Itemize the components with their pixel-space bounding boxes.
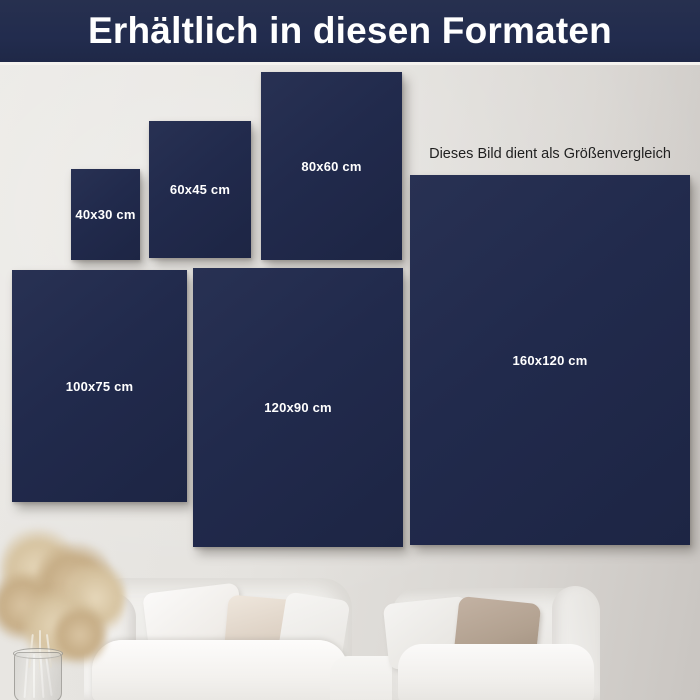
size-comparison-graphic: Erhältlich in diesen Formaten Dieses Bil… — [0, 0, 700, 700]
pampas-grass-left — [34, 536, 114, 636]
format-label: 40x30 cm — [75, 207, 135, 222]
pillow-white — [142, 582, 246, 661]
size-comparison-note: Dieses Bild dient als Größenvergleich — [408, 146, 692, 162]
format-tile-80x60cm: 80x60 cm — [261, 72, 402, 260]
format-label: 120x90 cm — [264, 400, 332, 415]
vase-stem — [33, 654, 35, 698]
glass-vase — [14, 652, 62, 700]
glass-vase-rim — [13, 648, 63, 659]
format-tile-40x30cm: 40x30 cm — [71, 169, 140, 260]
pillow-white — [383, 596, 473, 670]
header-underline — [0, 62, 700, 65]
vase-stem — [45, 658, 52, 696]
format-tile-120x90cm: 120x90 cm — [193, 268, 403, 547]
sofa-left-seat — [92, 640, 348, 700]
format-tile-60x45cm: 60x45 cm — [149, 121, 251, 258]
format-label: 60x45 cm — [170, 182, 230, 197]
pampas-grass-left — [0, 566, 54, 646]
vase-stem — [24, 656, 29, 698]
format-tile-160x120cm: 160x120 cm — [410, 175, 690, 545]
pampas-grass-left — [0, 522, 76, 618]
pillow-taupe — [453, 596, 541, 670]
sofa-right-arm — [552, 586, 600, 700]
header-bar: Erhältlich in diesen Formaten — [0, 0, 700, 62]
format-label: 160x120 cm — [512, 353, 587, 368]
format-label: 100x75 cm — [66, 379, 134, 394]
grass-stem — [39, 630, 41, 670]
sofa-left-arm — [84, 592, 136, 700]
pampas-grass-left — [52, 602, 108, 668]
pampas-grass-left — [22, 584, 94, 668]
grass-stem — [46, 634, 52, 668]
sofa-seat — [330, 656, 490, 700]
sofa-right — [392, 588, 600, 700]
page-title: Erhältlich in diesen Formaten — [88, 10, 612, 52]
pillow-beige — [223, 595, 310, 664]
pampas-grass-left — [66, 556, 126, 640]
format-label: 80x60 cm — [301, 159, 361, 174]
format-tile-100x75cm: 100x75 cm — [12, 270, 187, 502]
sofa-right-seat — [398, 644, 594, 700]
grass-stem — [28, 634, 34, 668]
sofa-left — [84, 578, 352, 700]
vase-stem — [40, 656, 45, 698]
pillow-white — [278, 591, 351, 662]
